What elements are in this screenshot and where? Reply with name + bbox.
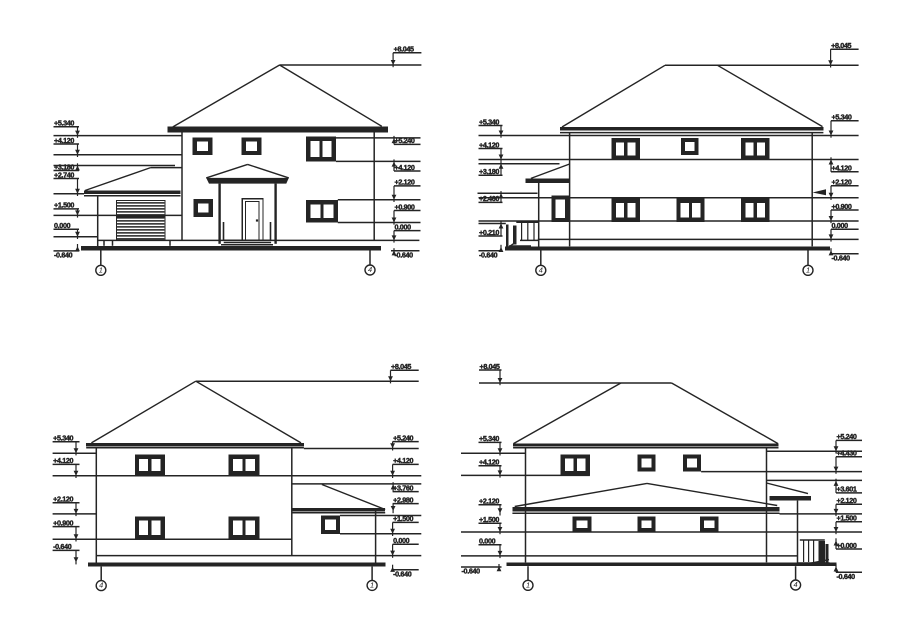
- svg-text:-0.640: -0.640: [54, 251, 73, 260]
- svg-text:1: 1: [526, 580, 530, 589]
- svg-text:0.000: 0.000: [479, 537, 496, 546]
- svg-text:+0.000: +0.000: [837, 541, 857, 550]
- svg-text:0.000: 0.000: [393, 536, 410, 545]
- svg-text:0.000: 0.000: [395, 222, 412, 231]
- svg-text:+0.900: +0.900: [395, 202, 415, 211]
- svg-text:+2.120: +2.120: [479, 497, 499, 506]
- svg-text:-0.640: -0.640: [837, 572, 856, 581]
- svg-text:+2.460: +2.460: [479, 194, 499, 203]
- svg-text:+8.045: +8.045: [391, 362, 411, 371]
- svg-text:+2.120: +2.120: [395, 178, 415, 187]
- svg-text:0.000: 0.000: [832, 221, 849, 230]
- svg-text:-0.640: -0.640: [393, 569, 412, 578]
- svg-text:+4.120: +4.120: [54, 136, 74, 145]
- svg-text:-0.640: -0.640: [479, 250, 498, 259]
- svg-text:-0.640: -0.640: [395, 250, 414, 259]
- svg-text:+4.120: +4.120: [395, 163, 415, 172]
- svg-text:+8.045: +8.045: [394, 45, 414, 54]
- svg-text:+0.900: +0.900: [53, 518, 73, 527]
- svg-text:+2.120: +2.120: [837, 496, 857, 505]
- svg-text:+3.180: +3.180: [479, 167, 499, 176]
- svg-text:1: 1: [99, 265, 103, 274]
- svg-text:-0.640: -0.640: [462, 567, 481, 576]
- svg-text:+8.045: +8.045: [831, 41, 851, 50]
- svg-text:+1.500: +1.500: [393, 514, 413, 523]
- svg-text:+0.900: +0.900: [832, 202, 852, 211]
- svg-text:+5.240: +5.240: [395, 136, 415, 145]
- svg-text:+5.340: +5.340: [54, 119, 74, 128]
- svg-text:+5.340: +5.340: [53, 434, 73, 443]
- svg-text:1: 1: [370, 581, 374, 590]
- svg-text:0.000: 0.000: [54, 221, 71, 230]
- svg-text:-0.640: -0.640: [53, 542, 72, 551]
- svg-text:+5.240: +5.240: [393, 433, 413, 442]
- svg-text:+4.120: +4.120: [53, 456, 73, 465]
- svg-text:+4.120: +4.120: [393, 456, 413, 465]
- svg-text:4: 4: [794, 580, 798, 589]
- svg-text:+5.340: +5.340: [832, 113, 852, 122]
- svg-text:4: 4: [99, 581, 103, 590]
- svg-text:4: 4: [539, 265, 543, 274]
- svg-text:+2.120: +2.120: [53, 495, 73, 504]
- svg-text:+5.340: +5.340: [479, 434, 499, 443]
- svg-text:+4.430: +4.430: [837, 449, 857, 458]
- svg-text:+8.045: +8.045: [480, 362, 500, 371]
- svg-text:1: 1: [806, 265, 810, 274]
- svg-text:+5.340: +5.340: [479, 117, 499, 126]
- svg-text:+0.210: +0.210: [479, 228, 499, 237]
- svg-text:+3.760: +3.760: [393, 483, 413, 492]
- svg-text:+1.500: +1.500: [54, 201, 74, 210]
- svg-text:+1.500: +1.500: [837, 514, 857, 523]
- svg-text:+2.740: +2.740: [54, 170, 74, 179]
- svg-text:4: 4: [368, 265, 372, 274]
- svg-text:-0.640: -0.640: [832, 253, 851, 262]
- svg-text:+1.500: +1.500: [479, 515, 499, 524]
- svg-text:+4.120: +4.120: [832, 164, 852, 173]
- svg-text:+4.120: +4.120: [479, 458, 499, 467]
- svg-text:+2.980: +2.980: [393, 495, 413, 504]
- svg-text:+2.120: +2.120: [832, 178, 852, 187]
- svg-text:+4.120: +4.120: [479, 140, 499, 149]
- svg-text:+3.601: +3.601: [837, 485, 857, 494]
- svg-text:+5.240: +5.240: [837, 432, 857, 441]
